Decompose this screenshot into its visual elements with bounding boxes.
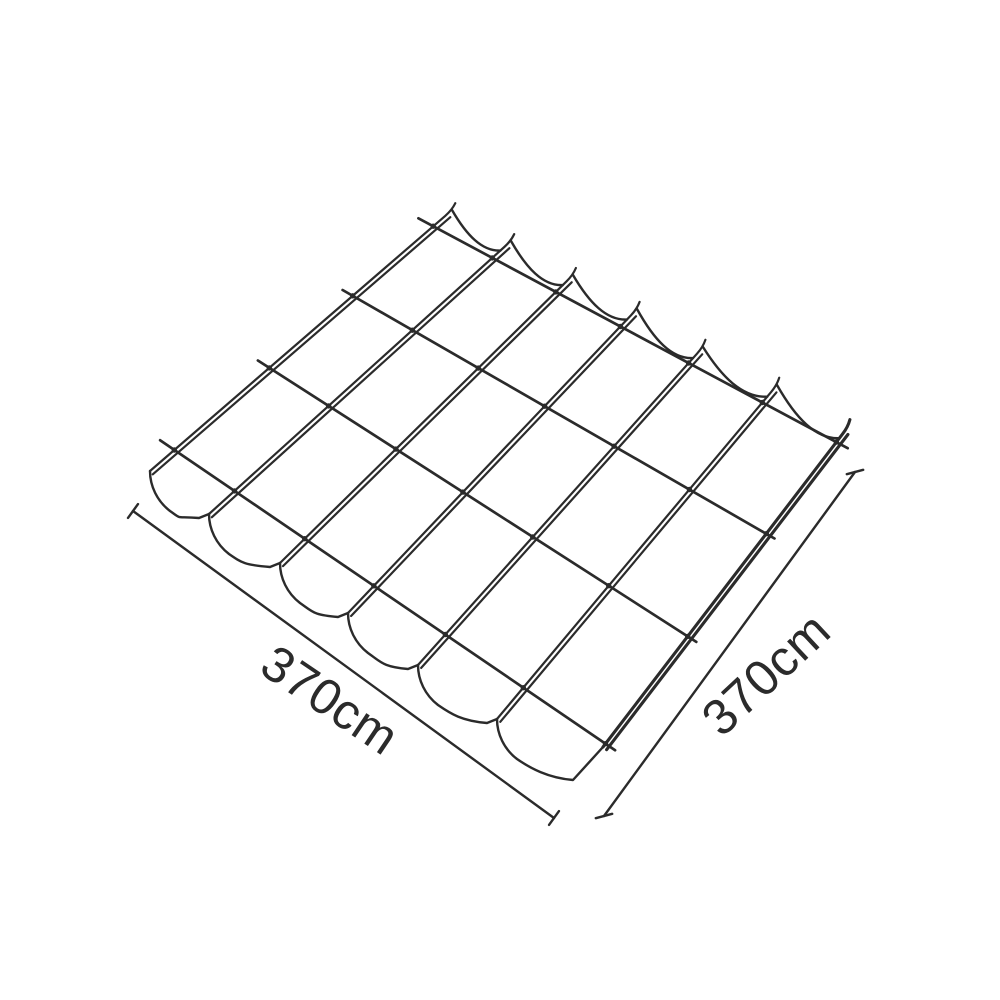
wire-rail-joint bbox=[530, 534, 535, 539]
wire-rail-joint bbox=[172, 447, 177, 452]
wire-rail-joint bbox=[834, 439, 839, 444]
dimension-right-label-group: 370cm bbox=[691, 601, 841, 746]
cross-wire-2 bbox=[343, 290, 775, 539]
wire-rail-joint bbox=[685, 634, 690, 639]
wire-rail-joint bbox=[232, 488, 237, 493]
dimension-left bbox=[128, 504, 559, 825]
fabric-flap-5 bbox=[418, 665, 497, 723]
wire-rail-joint bbox=[326, 403, 331, 408]
wire-rail-joint bbox=[476, 365, 481, 370]
cross-wire-4 bbox=[160, 440, 615, 750]
wire-rail-joint bbox=[687, 487, 692, 492]
dimension-label-right: 370cm bbox=[691, 601, 841, 746]
wire-rail-joint bbox=[350, 293, 355, 298]
wire-rail-joint bbox=[267, 365, 272, 370]
product-diagram-canvas: 370cm 370cm bbox=[0, 0, 1000, 1000]
wire-rail-joint bbox=[431, 224, 436, 229]
wire-rail-joint bbox=[490, 255, 495, 260]
cross-wire-1 bbox=[418, 218, 847, 448]
wire-rail-joint bbox=[542, 404, 547, 409]
wire-rail-joint bbox=[764, 531, 769, 536]
wire-rail-joint bbox=[371, 583, 376, 588]
rail-4-inner-line bbox=[351, 316, 636, 616]
scallop-6 bbox=[777, 385, 839, 438]
wire-rail-joint bbox=[393, 446, 398, 451]
rail-5-inner-line bbox=[421, 354, 702, 668]
scallop-1 bbox=[452, 210, 500, 251]
wire-rail-joint bbox=[460, 489, 465, 494]
rail-2-outer-line bbox=[209, 234, 514, 514]
fabric-flap-3 bbox=[280, 563, 348, 617]
scallop-2 bbox=[511, 241, 563, 285]
fabric-flap-1 bbox=[150, 471, 209, 518]
wire-rail-joint bbox=[603, 741, 608, 746]
wire-rail-joint bbox=[618, 324, 623, 329]
scallop-3 bbox=[573, 275, 627, 320]
fabric-flap-2 bbox=[209, 514, 280, 567]
wire-rail-joint bbox=[686, 360, 691, 365]
scalloped-edge-group bbox=[452, 210, 839, 438]
wire-rail-joint bbox=[611, 444, 616, 449]
wire-rail-joint bbox=[553, 289, 558, 294]
fabric-flap-6 bbox=[497, 719, 603, 780]
dimension-left-end-tick bbox=[549, 811, 559, 825]
wire-rail-joint bbox=[410, 328, 415, 333]
pergola-canopy-diagram: 370cm 370cm bbox=[0, 0, 1000, 1000]
wire-rail-joint bbox=[443, 632, 448, 637]
wire-rail-joint bbox=[302, 536, 307, 541]
fabric-flap-4 bbox=[348, 613, 418, 669]
wire-rail-joint bbox=[606, 583, 611, 588]
wire-rail-joint bbox=[760, 400, 765, 405]
wire-rail-joint bbox=[521, 685, 526, 690]
dimension-left-start-tick bbox=[128, 504, 138, 518]
